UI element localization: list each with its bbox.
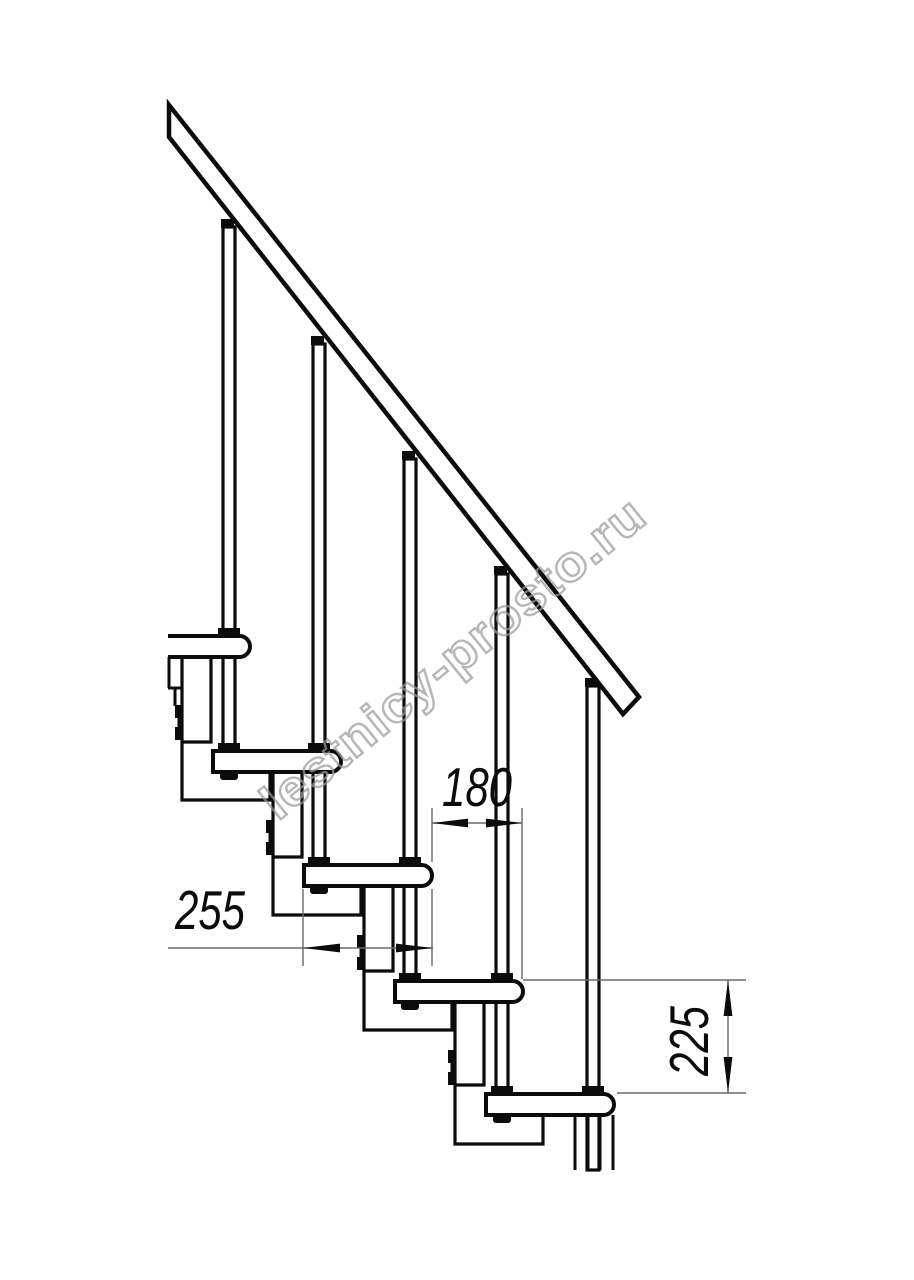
connector-bolt (357, 935, 365, 948)
baluster-cap (221, 219, 234, 228)
staircase-technical-drawing: 180 255 225 lestnicy-prosto.ru (0, 0, 914, 1280)
connector-bolt (357, 957, 365, 970)
baluster-foot (399, 857, 421, 865)
bracket-pipe-housing (455, 1002, 484, 1085)
baluster-foot (582, 1086, 604, 1094)
under-tread-nut (401, 1002, 419, 1010)
baluster-foot (491, 973, 513, 981)
under-tread-nut (220, 772, 238, 780)
dimension-label-225: 225 (658, 1006, 720, 1077)
pipe-foot (399, 973, 421, 981)
connector-bolt (266, 820, 274, 833)
baluster-cap (585, 678, 598, 687)
connector-bolt (175, 705, 183, 718)
connector-bolt (266, 842, 274, 855)
connector-bolt (448, 1072, 456, 1085)
arrowhead-bottom (724, 1057, 733, 1093)
baluster-cap (402, 451, 415, 460)
under-tread-nut (493, 1115, 511, 1123)
drawing-sheet: 180 255 225 lestnicy-prosto.ru (0, 0, 914, 1280)
baluster-1 (223, 227, 235, 751)
bracket-flange (168, 688, 181, 706)
arrowhead-top (724, 980, 733, 1016)
dimension-label-255: 255 (174, 879, 245, 941)
tread-5 (486, 1094, 614, 1115)
dimension-label-180: 180 (442, 756, 512, 818)
tread-1 (168, 636, 250, 657)
connector-bolt (448, 1050, 456, 1063)
dimension-riser-height: 225 (523, 980, 746, 1093)
under-tread-nut (310, 886, 328, 894)
baluster-cap (494, 566, 507, 575)
baluster-foot (218, 628, 240, 636)
module-bracket-1 (168, 657, 270, 800)
arrowhead-left (432, 819, 468, 828)
bracket-pipe-housing (182, 657, 211, 742)
pipe-foot (218, 743, 240, 751)
connector-bolt (175, 727, 183, 740)
arrowhead-left (303, 944, 340, 953)
tread-3 (304, 865, 432, 886)
bracket-pipe-housing (364, 886, 393, 971)
tread-4 (395, 981, 523, 1002)
pipe-foot (308, 857, 330, 865)
baluster-cap (311, 336, 324, 345)
pipe-foot (491, 1086, 513, 1094)
